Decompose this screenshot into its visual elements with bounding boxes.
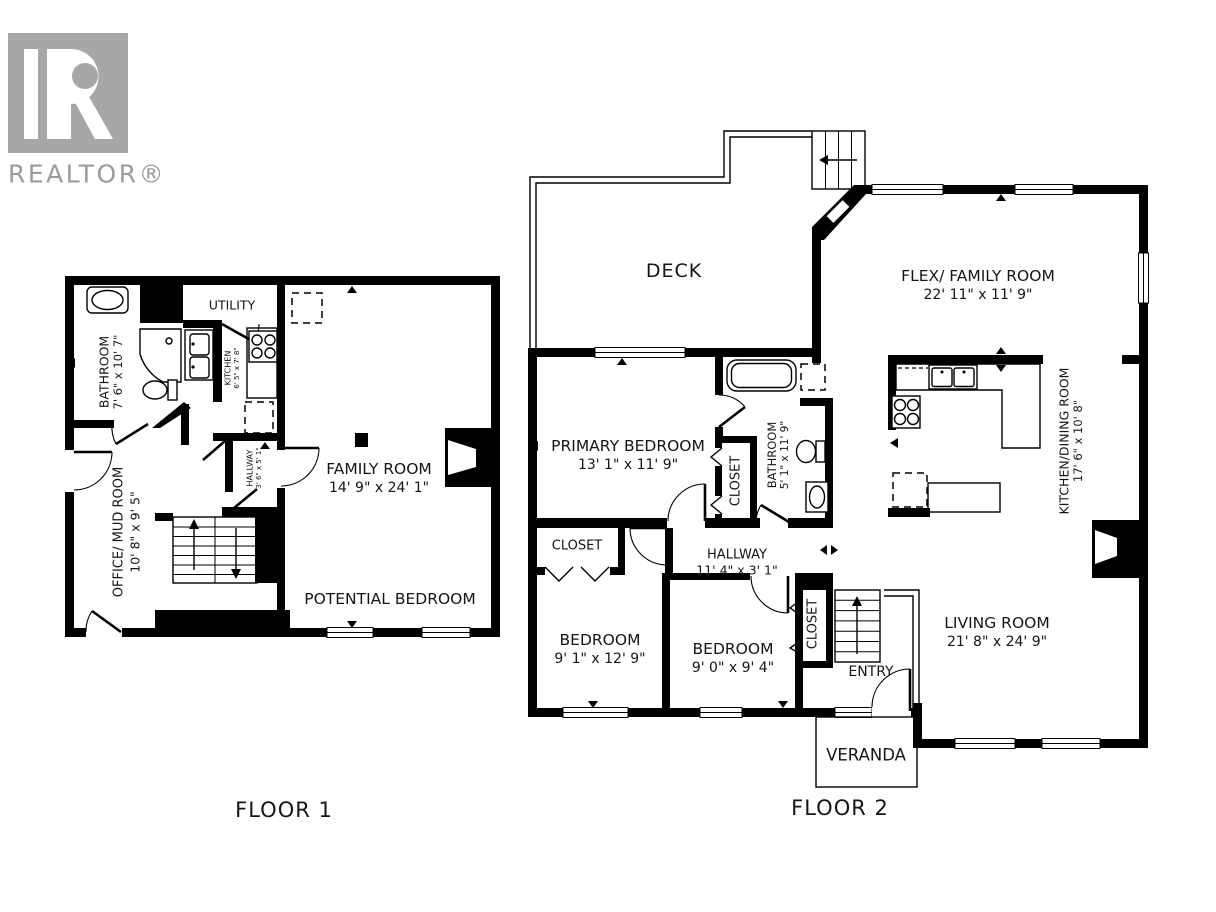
room-label-potential-bedroom: POTENTIAL BEDROOM (304, 590, 476, 608)
room-dims-office-mud-room: 10' 8" x 9' 5" (128, 491, 143, 572)
room-dims-living-room: 21' 8" x 24' 9" (947, 634, 1047, 650)
floor1-caption: FLOOR 1 (235, 798, 333, 822)
room-label-bedroom-right: BEDROOM (693, 640, 774, 658)
room-label-hall-closet: CLOSET (552, 539, 603, 554)
room-label-hallway-f1: HALLWAY (246, 449, 255, 486)
deck-stairs (812, 131, 865, 189)
vanity-sink-icon (185, 330, 213, 380)
room-dims-kitchen-dining: 17' 6" x 10' 8" (1071, 400, 1085, 482)
room-dims-bedroom-right: 9' 0" x 9' 4" (692, 660, 774, 676)
column-post (355, 433, 368, 447)
bifold-door (545, 567, 573, 581)
entry-staircase (835, 590, 919, 710)
room-label-bathroom-f2: BATHROOM (765, 422, 779, 489)
room-dims-primary-bedroom: 13' 1" x 11' 9" (578, 457, 678, 473)
floor2-plan: DECK FLEX/ FAMILY ROOM 22' 11" x 11' 9" … (528, 131, 1149, 820)
realtor-logo-wordmark: REALTOR® (8, 160, 166, 189)
room-label-office-mud-room: OFFICE/ MUD ROOM (112, 467, 127, 597)
room-dims-bathroom-f2: 5' 1" x 11' 9" (779, 421, 791, 489)
room-label-bedroom-left: BEDROOM (560, 631, 641, 649)
bifold-door (581, 567, 609, 581)
floor1-plan: BATHROOM 7' 6" x 10' 7" UTILITY KITCHEN … (64, 276, 500, 822)
floorplan-page: REALTOR® (0, 0, 1216, 912)
floor2-caption: FLOOR 2 (791, 796, 889, 820)
room-label-primary-bedroom: PRIMARY BEDROOM (551, 437, 705, 455)
room-label-primary-closet: CLOSET (729, 456, 744, 507)
room-dims-bathroom-f1: 7' 6" x 10' 7" (111, 335, 125, 410)
stove-icon (247, 328, 277, 398)
kitchen-island (928, 483, 1000, 512)
room-label-entry-closet: CLOSET (806, 599, 821, 650)
room-label-kitchen-f1: KITCHEN (224, 351, 233, 386)
room-dims-flex-family: 22' 11" x 11' 9" (923, 287, 1032, 303)
room-label-living-room: LIVING ROOM (944, 614, 1049, 632)
room-dims-family-room-f1: 14' 9" x 24' 1" (329, 480, 429, 496)
staircase (173, 517, 257, 583)
deck-door (826, 199, 851, 224)
sink-icon-f2 (806, 482, 828, 512)
fireplace (445, 428, 497, 487)
corner-shower-icon (140, 329, 181, 382)
room-dims-hallway-f2: 11' 4" x 3' 1" (696, 563, 777, 578)
room-label-family-room-f1: FAMILY ROOM (326, 460, 432, 478)
room-label-flex-family: FLEX/ FAMILY ROOM (901, 267, 1055, 285)
room-dims-hallway-f1: 3' 6" x 5' 1" (255, 447, 263, 488)
fireplace-f2 (1092, 520, 1143, 578)
realtor-logo-icon: REALTOR® (8, 33, 166, 189)
deck-railing (530, 131, 812, 348)
bathtub-icon-f2 (727, 360, 796, 391)
room-label-entry: ENTRY (848, 664, 894, 680)
toilet-icon (143, 380, 177, 400)
room-label-hallway-f2: HALLWAY (707, 548, 767, 563)
bifold-door (711, 448, 722, 466)
room-label-kitchen-dining: KITCHEN/DINING ROOM (1057, 368, 1072, 515)
room-label-veranda: VERANDA (826, 746, 907, 765)
double-sink-icon (929, 365, 977, 389)
room-dims-bedroom-left: 9' 1" x 12' 9" (554, 651, 645, 667)
room-label-bathroom-f1: BATHROOM (97, 336, 112, 408)
stove-icon-f2 (892, 396, 920, 428)
room-dims-kitchen-f1: 6' 5" x 7' 8" (233, 347, 241, 388)
bifold-door (711, 496, 722, 514)
room-label-utility: UTILITY (209, 298, 256, 313)
toilet-icon-f2 (797, 441, 826, 463)
bathtub-icon (87, 287, 128, 313)
room-label-deck: DECK (646, 260, 702, 282)
floorplan-canvas: REALTOR® (0, 0, 1216, 912)
